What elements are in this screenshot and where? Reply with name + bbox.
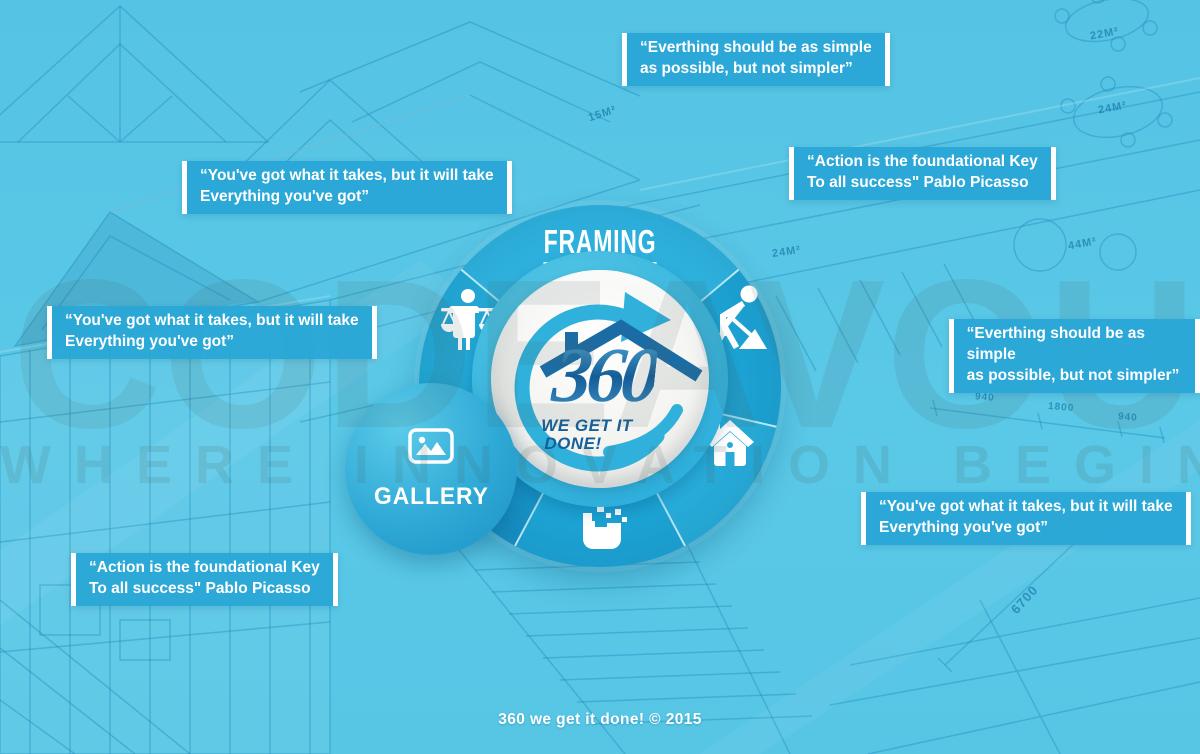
quote-text: “Action is the foundational Key To all s…: [794, 147, 1051, 200]
quote-text: “Action is the foundational Key To all s…: [76, 553, 333, 606]
quote-accent-bar: [885, 33, 890, 86]
quote-accent-bar: [1195, 319, 1200, 393]
quote-box-lower-right: “You've got what it takes, but it will t…: [861, 492, 1191, 545]
quote-text: “You've got what it takes, but it will t…: [866, 492, 1186, 545]
image-icon: [408, 428, 454, 469]
quote-accent-bar: [333, 553, 338, 606]
blueprint-dimension-label: 940: [1118, 411, 1139, 424]
pixel-bucket-icon: [575, 536, 629, 553]
gallery-label: GALLERY: [374, 483, 489, 511]
quote-accent-bar: [1051, 147, 1056, 200]
quote-text: “You've got what it takes, but it will t…: [187, 161, 507, 214]
logo-tagline-line1: WE GET IT: [487, 416, 687, 436]
quote-box-top: “Everthing should be as simple as possib…: [622, 33, 890, 86]
quote-box-mid-left: “You've got what it takes, but it will t…: [47, 306, 377, 359]
quote-box-mid-right: “Everthing should be as simple as possib…: [949, 319, 1200, 393]
quote-accent-bar: [507, 161, 512, 214]
quote-text: “You've got what it takes, but it will t…: [52, 306, 372, 359]
quote-text: “Everthing should be as simple as possib…: [954, 319, 1196, 393]
blueprint-dimension-label: 1800: [1048, 401, 1075, 414]
logo-360-number: 360: [549, 336, 659, 414]
quote-accent-bar: [1186, 492, 1191, 545]
quote-box-upper-left: “You've got what it takes, but it will t…: [182, 161, 512, 214]
quote-accent-bar: [372, 306, 377, 359]
footer-copyright: 360 we get it done! © 2015: [0, 711, 1200, 729]
gallery-button[interactable]: GALLERY: [345, 383, 517, 555]
logo-360-badge: 360 WE GET IT DONE!: [491, 270, 709, 488]
quote-box-upper-right: “Action is the foundational Key To all s…: [789, 147, 1056, 200]
quote-text: “Everthing should be as simple as possib…: [627, 33, 885, 86]
house-icon: [705, 454, 755, 471]
blueprint-dimension-label: 940: [975, 391, 996, 404]
quote-box-lower-left: “Action is the foundational Key To all s…: [71, 553, 338, 606]
